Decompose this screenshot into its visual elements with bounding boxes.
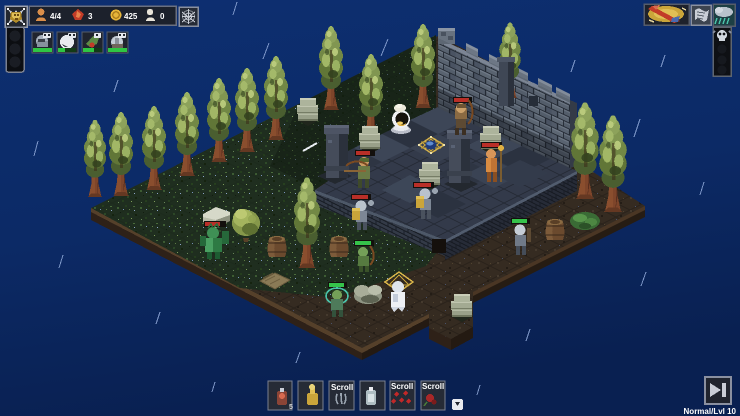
svg-text:3: 3 — [88, 12, 93, 21]
svg-text:5: 5 — [289, 404, 293, 411]
svg-text:Scroll: Scroll — [331, 383, 353, 392]
svg-text:425: 425 — [124, 12, 138, 21]
svg-text:Scroll: Scroll — [422, 382, 444, 391]
svg-text:Scroll: Scroll — [391, 382, 413, 391]
svg-text:0: 0 — [160, 12, 165, 21]
svg-text:Normal/Lvl 10: Normal/Lvl 10 — [684, 407, 737, 416]
svg-text:4/4: 4/4 — [50, 12, 62, 21]
